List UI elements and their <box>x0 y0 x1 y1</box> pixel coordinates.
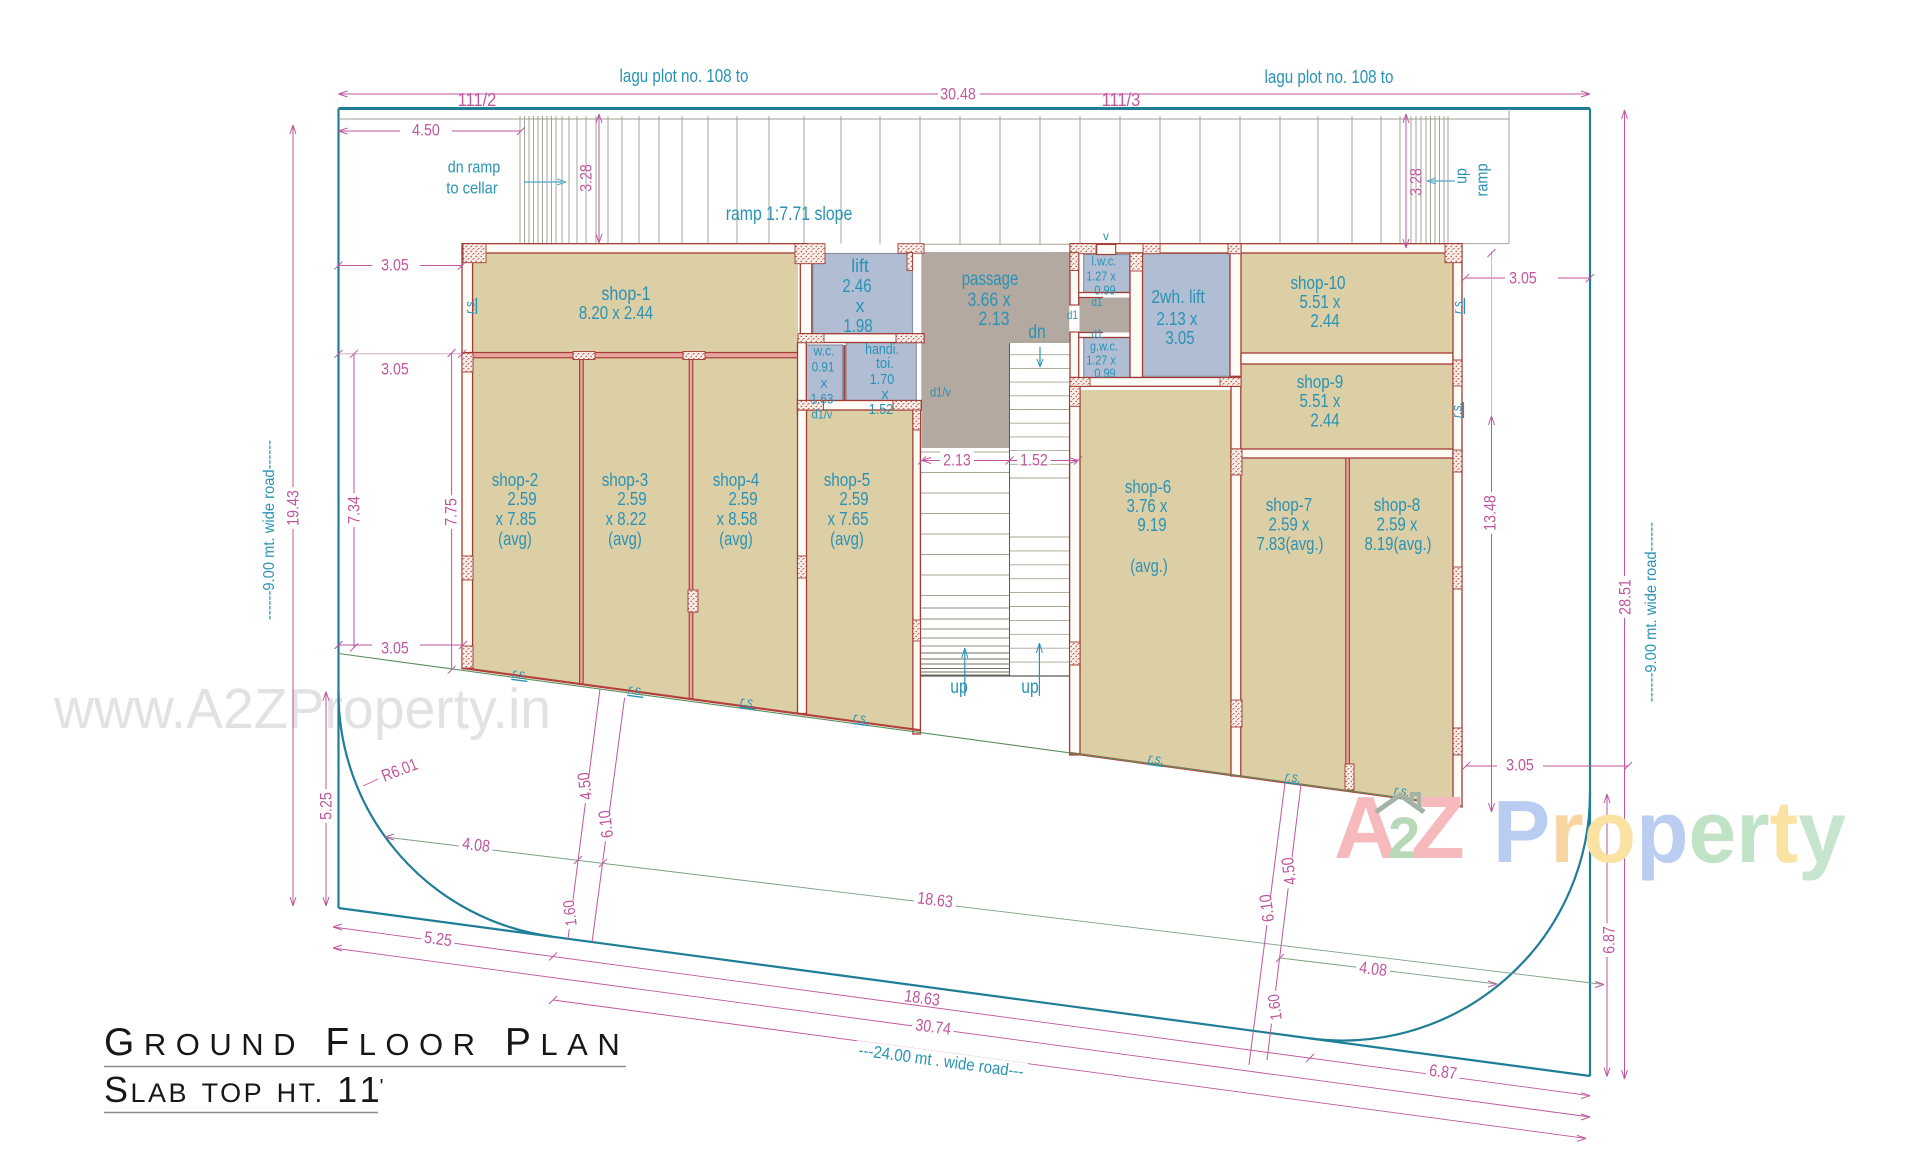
svg-text:3.05: 3.05 <box>381 359 409 378</box>
svg-text:2.59: 2.59 <box>839 489 868 509</box>
svg-text:shop-8: shop-8 <box>1374 495 1421 515</box>
svg-text:shop-4: shop-4 <box>713 470 760 490</box>
svg-text:3.28: 3.28 <box>576 164 595 192</box>
svg-text:ramp 1:7.71 slope: ramp 1:7.71 slope <box>726 204 853 225</box>
svg-text:2.44: 2.44 <box>1310 410 1339 430</box>
svg-text:ramp: ramp <box>1472 164 1491 197</box>
svg-text:7.83(avg.): 7.83(avg.) <box>1257 534 1324 554</box>
svg-text:shop-5: shop-5 <box>824 470 871 490</box>
svg-text:3.05: 3.05 <box>1165 328 1194 348</box>
svg-text:v: v <box>1103 229 1109 243</box>
svg-text:19.43: 19.43 <box>283 490 302 526</box>
svg-text:4.50: 4.50 <box>412 120 440 139</box>
svg-text:(avg): (avg) <box>830 529 864 549</box>
svg-text:1.27 x: 1.27 x <box>1086 268 1116 283</box>
svg-text:3.05: 3.05 <box>381 255 409 274</box>
svg-text:shop-10: shop-10 <box>1290 273 1345 293</box>
svg-text:dn ramp: dn ramp <box>448 157 500 176</box>
svg-text:x 8.58: x 8.58 <box>717 509 758 529</box>
svg-text:2.59: 2.59 <box>507 489 536 509</box>
svg-text:0.91: 0.91 <box>812 359 835 375</box>
svg-text:2wh. lift: 2wh. lift <box>1151 287 1205 307</box>
svg-text:dn: dn <box>1028 322 1046 343</box>
svg-text:x 7.85: x 7.85 <box>496 509 537 529</box>
svg-text:7.75: 7.75 <box>441 498 460 526</box>
svg-text:6.87: 6.87 <box>1428 1061 1458 1083</box>
svg-text:4.50: 4.50 <box>1278 856 1300 886</box>
svg-text:111/3: 111/3 <box>1102 90 1141 110</box>
svg-text:2.59 x: 2.59 x <box>1269 514 1310 534</box>
svg-text:7.34: 7.34 <box>344 496 363 524</box>
svg-text:d1/v: d1/v <box>930 384 951 399</box>
svg-text:shop-6: shop-6 <box>1125 477 1172 497</box>
svg-text:9.19: 9.19 <box>1137 515 1166 535</box>
svg-text:0.99: 0.99 <box>1094 282 1115 297</box>
svg-text:2.59: 2.59 <box>728 489 757 509</box>
svg-text:lagu plot no. 108 to: lagu plot no. 108 to <box>620 66 749 86</box>
svg-text:shop-2: shop-2 <box>492 470 539 490</box>
svg-text:Property: Property <box>1493 782 1846 881</box>
svg-text:1.60: 1.60 <box>1266 993 1286 1021</box>
svg-text:4.08: 4.08 <box>461 834 491 856</box>
svg-text:8.19(avg.): 8.19(avg.) <box>1365 534 1432 554</box>
svg-text:r.s.: r.s. <box>739 693 757 711</box>
svg-text:5.25: 5.25 <box>316 792 335 820</box>
svg-text:3.05: 3.05 <box>381 638 409 657</box>
svg-text:shop-9: shop-9 <box>1297 372 1344 392</box>
svg-text:13.48: 13.48 <box>1480 495 1499 531</box>
svg-text:2.46: 2.46 <box>842 276 871 296</box>
svg-text:w.c.: w.c. <box>813 343 835 359</box>
svg-text:2.13 x: 2.13 x <box>1157 309 1198 329</box>
svg-text:3.28: 3.28 <box>1406 168 1425 196</box>
svg-text:2.59: 2.59 <box>617 489 646 509</box>
svg-text:r.s.: r.s. <box>462 298 478 314</box>
svg-text:6.10: 6.10 <box>595 809 617 839</box>
svg-text:1.60: 1.60 <box>561 899 581 927</box>
svg-text:1.52: 1.52 <box>869 401 893 418</box>
svg-text:r.s.: r.s. <box>627 681 645 699</box>
svg-text:lift: lift <box>851 256 869 276</box>
svg-text:3.05: 3.05 <box>1509 268 1537 287</box>
svg-text:passage: passage <box>962 269 1019 290</box>
svg-text:1.63: 1.63 <box>811 391 834 407</box>
svg-text:x 8.22: x 8.22 <box>606 509 647 529</box>
svg-text:g.w.c.: g.w.c. <box>1090 338 1118 353</box>
svg-text:x 7.65: x 7.65 <box>828 509 869 529</box>
svg-text:toi.: toi. <box>876 355 894 372</box>
svg-text:30.48: 30.48 <box>940 84 976 103</box>
svg-text:2.44: 2.44 <box>1310 311 1339 331</box>
svg-text:1.52: 1.52 <box>1020 450 1048 469</box>
svg-text:l.w.c.: l.w.c. <box>1091 253 1116 268</box>
svg-text:5.51 x: 5.51 x <box>1300 391 1341 411</box>
svg-text:6.10: 6.10 <box>1256 893 1278 923</box>
svg-text:2.59 x: 2.59 x <box>1377 514 1418 534</box>
svg-text:2.13: 2.13 <box>979 309 1010 330</box>
svg-text:up: up <box>950 677 968 698</box>
svg-text:2.13: 2.13 <box>943 450 971 469</box>
svg-text:0.99: 0.99 <box>1094 365 1115 380</box>
svg-text:6.87: 6.87 <box>1599 926 1618 954</box>
svg-text:(avg): (avg) <box>498 529 532 549</box>
svg-text:(avg): (avg) <box>608 529 642 549</box>
svg-text:------9.00 mt. wide road------: ------9.00 mt. wide road------ <box>1643 522 1660 702</box>
svg-text:www.A2ZProperty.in: www.A2ZProperty.in <box>53 677 551 741</box>
svg-text:lagu plot no. 108 to: lagu plot no. 108 to <box>1265 67 1394 87</box>
svg-text:to cellar: to cellar <box>446 178 498 197</box>
svg-text:5.51 x: 5.51 x <box>1300 292 1341 312</box>
svg-text:up: up <box>1021 677 1039 698</box>
svg-text:8.20 x 2.44: 8.20 x 2.44 <box>579 303 653 323</box>
svg-text:r.s.: r.s. <box>1449 402 1465 418</box>
svg-text:x: x <box>856 296 865 316</box>
svg-text:shop-7: shop-7 <box>1266 495 1313 515</box>
svg-text:(avg): (avg) <box>719 529 753 549</box>
svg-text:d1/v: d1/v <box>812 406 833 421</box>
svg-text:r.s.: r.s. <box>1450 298 1466 314</box>
svg-text:r.s.: r.s. <box>1284 768 1302 786</box>
svg-text:4.08: 4.08 <box>1358 958 1388 980</box>
svg-text:111/2: 111/2 <box>458 90 497 110</box>
svg-text:4.50: 4.50 <box>574 771 596 801</box>
svg-text:r.s.: r.s. <box>1147 750 1165 768</box>
svg-text:x: x <box>821 375 828 391</box>
svg-text:------9.00 mt. wide road------: ------9.00 mt. wide road------ <box>261 440 278 620</box>
svg-text:d1: d1 <box>1067 308 1078 322</box>
svg-text:5.25: 5.25 <box>423 928 453 950</box>
svg-text:(avg.): (avg.) <box>1130 556 1168 576</box>
svg-text:3.76 x: 3.76 x <box>1127 496 1168 516</box>
svg-text:3.66 x: 3.66 x <box>967 290 1011 311</box>
svg-text:28.51: 28.51 <box>1615 579 1634 615</box>
svg-text:r.s.: r.s. <box>511 665 529 683</box>
svg-text:1.98: 1.98 <box>843 316 872 336</box>
svg-text:3.05: 3.05 <box>1506 755 1534 774</box>
svg-text:GROUND FLOOR PLAN: GROUND FLOOR PLAN <box>104 1021 629 1064</box>
svg-text:r.s.: r.s. <box>852 709 870 727</box>
svg-text:shop-3: shop-3 <box>602 470 649 490</box>
